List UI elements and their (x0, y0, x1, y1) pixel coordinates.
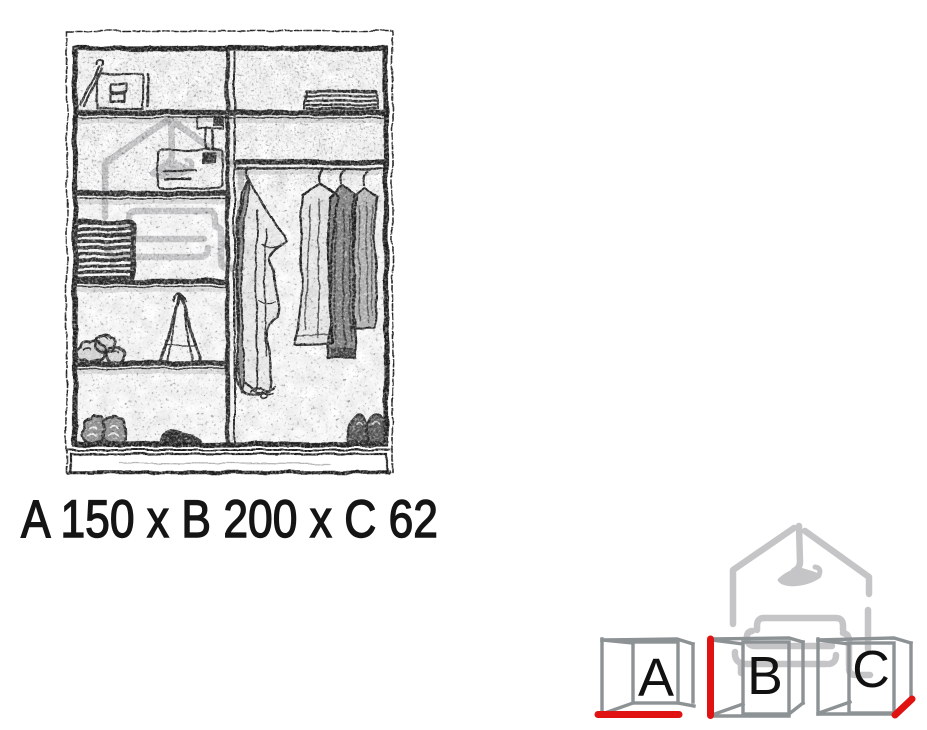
svg-text:C: C (852, 641, 890, 699)
svg-text:A: A (638, 648, 674, 708)
svg-text:A 150 x B 200 x C 62: A 150 x B 200 x C 62 (21, 490, 438, 549)
svg-text:B: B (747, 647, 783, 706)
